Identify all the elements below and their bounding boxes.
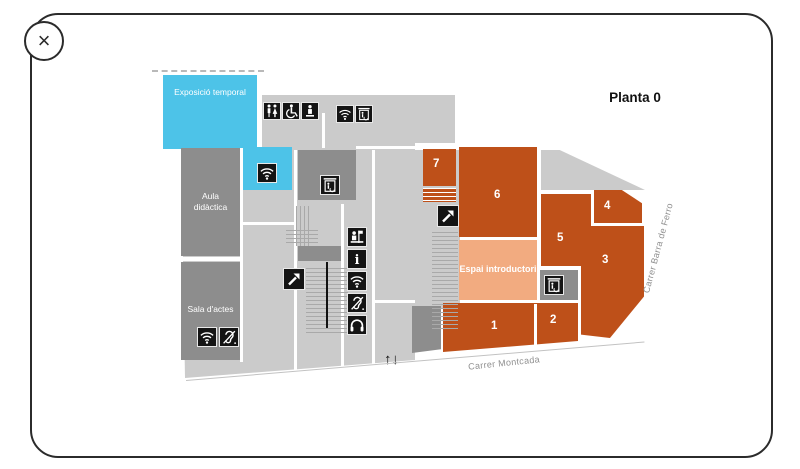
wifi-icon bbox=[257, 163, 277, 183]
street-label-montcada: Carrer Montcada bbox=[468, 354, 541, 371]
room-3-number: 3 bbox=[602, 254, 608, 266]
hearing-loop-icon bbox=[219, 327, 239, 347]
room-1-number: 1 bbox=[491, 320, 497, 332]
room-7-stairs bbox=[423, 188, 456, 202]
elevator-icon bbox=[320, 175, 340, 195]
area-temporary-exhibition-label: Exposició temporal bbox=[163, 87, 257, 98]
room-2-number: 2 bbox=[550, 314, 556, 326]
wall-v2 bbox=[294, 150, 297, 376]
room-6: 6 bbox=[459, 147, 537, 237]
small-staircase-2 bbox=[286, 230, 318, 243]
room-4-number: 4 bbox=[604, 200, 610, 212]
room-5-number: 5 bbox=[557, 232, 563, 244]
room-7: 7 bbox=[423, 149, 456, 186]
elevator-icon bbox=[544, 275, 564, 295]
aula-label-1: Aula bbox=[202, 191, 219, 201]
elevator-icon bbox=[355, 105, 373, 123]
wall-v1 bbox=[240, 148, 243, 362]
entrance-arrows: ↑↓ bbox=[384, 351, 399, 368]
toilets-icon bbox=[263, 102, 281, 120]
wall-h1 bbox=[181, 257, 243, 261]
area-sala-actes-label: Sala d'actes bbox=[181, 304, 240, 315]
accessible-toilet-icon bbox=[282, 102, 300, 120]
wifi-icon bbox=[197, 327, 217, 347]
area-aula-didactica: Aula didàctica bbox=[181, 148, 240, 256]
floor-plan: Exposició temporal Aula didàctica Sala d… bbox=[0, 0, 800, 469]
central-staircase-rail bbox=[326, 262, 328, 328]
wall-v4 bbox=[372, 150, 375, 374]
area-temporary-exhibition: Exposició temporal bbox=[161, 73, 259, 151]
area-espai-introductori: Espai introductori bbox=[459, 240, 537, 300]
room-6-number: 6 bbox=[494, 189, 500, 201]
wall-h2 bbox=[356, 146, 455, 149]
info-icon bbox=[347, 249, 367, 269]
area-espai-introductori-label: Espai introductori bbox=[459, 264, 536, 275]
room-7-number: 7 bbox=[433, 158, 439, 170]
floor-plan-screen: i × Planta 0 bbox=[0, 0, 800, 469]
escalator-icon bbox=[437, 205, 459, 227]
wifi-icon bbox=[347, 271, 367, 291]
wall-h3 bbox=[242, 222, 294, 225]
wall-room1-room2 bbox=[534, 304, 537, 348]
wall-v5 bbox=[322, 113, 325, 148]
plan-open-edge bbox=[152, 70, 264, 72]
upper-right-floor bbox=[541, 150, 645, 190]
room-3: 3 bbox=[581, 226, 644, 338]
wifi-icon bbox=[336, 105, 354, 123]
audio-guide-icon bbox=[347, 315, 367, 335]
aula-label-2: didàctica bbox=[194, 202, 228, 212]
drinking-fountain-icon bbox=[301, 102, 319, 120]
central-staircase bbox=[306, 268, 348, 334]
area-aula-didactica-label: Aula didàctica bbox=[194, 191, 228, 212]
service-room-mid bbox=[298, 246, 343, 261]
ticket-desk-icon bbox=[347, 227, 367, 247]
escalator-icon bbox=[283, 268, 305, 290]
wall-h4 bbox=[374, 300, 415, 303]
hearing-loop-icon bbox=[347, 293, 367, 313]
main-staircase bbox=[432, 232, 458, 332]
